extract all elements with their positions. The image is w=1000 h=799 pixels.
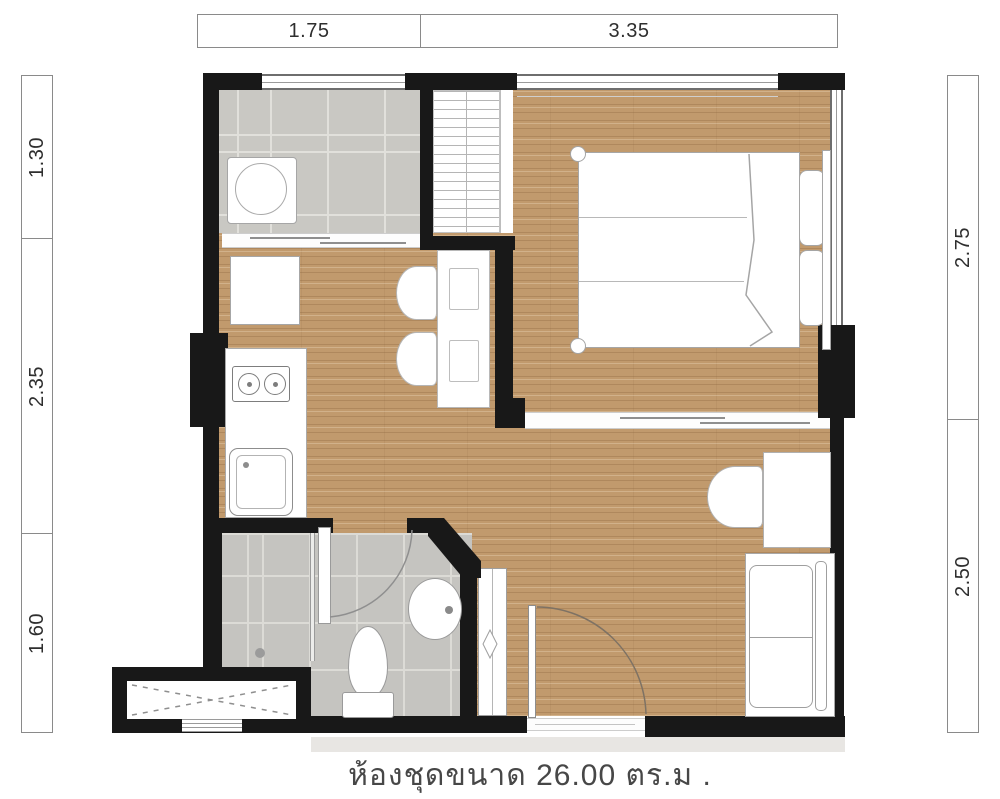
wall-bathroom-right (460, 570, 477, 716)
dimension-segment: 1.30 (22, 76, 52, 239)
wall-top-right (778, 73, 845, 90)
dimension-segment: 3.35 (421, 15, 837, 47)
dimension-bar-top: 1.75 3.35 (197, 14, 838, 48)
sofa-cushions (749, 565, 813, 708)
stove (232, 366, 290, 402)
desk-chair (707, 466, 763, 528)
dimension-label: 2.75 (952, 227, 975, 268)
bed (578, 152, 800, 348)
window-bedroom (517, 74, 778, 90)
dining-chair (396, 332, 437, 386)
wall-left-bathroom (203, 525, 222, 672)
dining-chair (396, 266, 437, 320)
headboard (822, 150, 831, 350)
desk (763, 452, 831, 548)
wall-left-mid (203, 427, 219, 525)
ac-ledge-wall-right (296, 667, 311, 733)
dimension-segment: 2.35 (22, 239, 52, 534)
refrigerator (230, 256, 300, 325)
wall-bottom-living (645, 716, 845, 737)
wall-left-pillar (190, 333, 228, 427)
dimension-label: 2.35 (26, 366, 49, 407)
dimension-bar-left: 1.30 2.35 1.60 (21, 75, 53, 733)
dimension-segment: 1.75 (198, 15, 421, 47)
bedroom-sliding-partition (525, 412, 838, 429)
washing-machine (227, 157, 297, 224)
shower-drain (255, 648, 265, 658)
wall-bathroom-top (203, 518, 333, 533)
dimension-label: 2.50 (952, 556, 975, 597)
dimension-label: 1.30 (26, 137, 49, 178)
dimension-segment: 1.60 (22, 534, 52, 732)
wall-dining-bedroom (495, 240, 513, 418)
dimension-label: 1.60 (26, 613, 49, 654)
dimension-label: 3.35 (609, 20, 650, 43)
balcony-sliding-door (222, 233, 420, 248)
place-setting (449, 268, 479, 310)
ac-ledge-louver (182, 719, 242, 732)
shoe-cabinet (478, 568, 507, 716)
wall-bottom-bathroom (311, 716, 527, 733)
dimension-segment: 2.75 (948, 76, 978, 420)
entry-door-leaf (528, 605, 536, 718)
bed-post (570, 146, 586, 162)
sofa (745, 553, 835, 717)
stove-burner (238, 373, 260, 395)
place-setting (449, 340, 479, 382)
wash-basin (408, 578, 462, 640)
floor-plan-canvas: 1.75 3.35 1.30 2.35 1.60 2.75 2.50 (0, 0, 1000, 799)
plan-caption: ห้องชุดขนาด 26.00 ตร.ม . (255, 752, 805, 799)
dimension-segment: 2.50 (948, 420, 978, 732)
bed-post (570, 338, 586, 354)
dimension-bar-right: 2.75 2.50 (947, 75, 979, 733)
wall-bathroom-top-right (407, 518, 433, 533)
window-balcony (262, 74, 405, 90)
wall-partition-stub (495, 398, 525, 428)
dining-table (437, 250, 490, 408)
wardrobe (433, 90, 500, 233)
entry-threshold (527, 718, 645, 731)
ac-ledge-wall-top (112, 667, 311, 681)
window-bedroom-side (830, 88, 843, 325)
shower-glass-partition (310, 533, 315, 661)
kitchen-sink (229, 448, 293, 516)
stove-burner (264, 373, 286, 395)
washing-machine-drum (235, 163, 287, 215)
sofa-backrest (815, 561, 827, 711)
bathroom-door-leaf (318, 527, 331, 624)
corridor-shade (311, 737, 845, 752)
ac-ledge-opening (127, 681, 296, 719)
wall-balcony-wardrobe (420, 88, 433, 250)
toilet-tank (342, 692, 394, 718)
dimension-label: 1.75 (289, 20, 330, 43)
wall-left-upper (203, 73, 219, 335)
window-sill-line (517, 96, 778, 97)
wardrobe-frame (500, 90, 513, 233)
